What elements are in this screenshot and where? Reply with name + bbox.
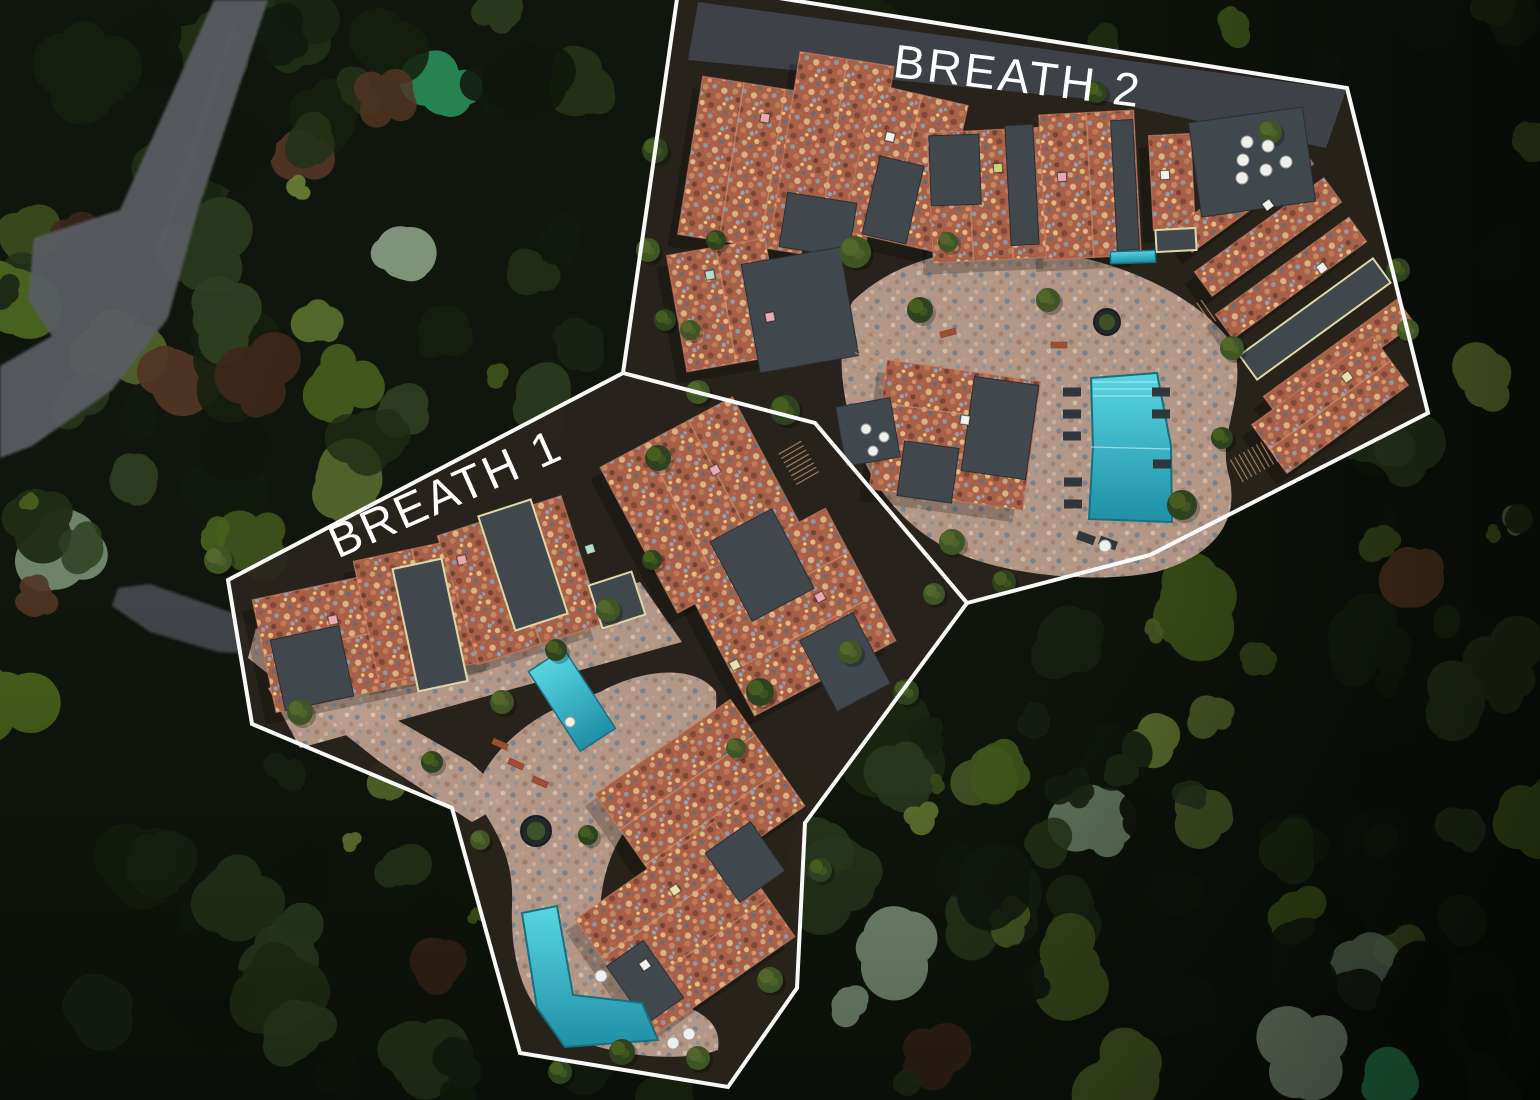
round-table [1237,154,1249,166]
roof-chimney-marker [760,113,770,123]
round-table [861,424,871,434]
roof-chimney-marker [328,615,339,626]
round-table [868,446,878,456]
flat-roof [929,134,981,206]
sun-lounger [1064,500,1082,509]
flat-roof [897,441,959,503]
round-table [879,432,889,442]
round-table [1262,140,1274,152]
flat-roof [741,247,859,373]
building-roof [1149,133,1196,230]
flat-roof-trimmed [1155,228,1196,252]
masterplan-stage: BREATH 1BREATH 2 [0,0,1540,1100]
roof-chimney-marker [960,415,970,425]
roof-chimney-marker [705,270,715,280]
planter-bush [1099,314,1115,330]
round-table [667,1037,679,1049]
sun-lounger [1152,410,1170,419]
round-table [1280,156,1292,168]
round-table [595,970,607,982]
sun-lounger [1153,460,1171,469]
sun-lounger [1064,478,1082,487]
roof-chimney-marker [1160,170,1169,179]
sun-lounger [1063,432,1081,441]
round-table [683,1028,695,1040]
roof-chimney-marker [1057,172,1066,181]
flat-roof [1005,124,1039,245]
flat-roof [270,626,353,711]
roof-chimney-marker [457,555,468,566]
roof-chimney-marker [993,163,1002,172]
round-table [565,717,575,727]
round-table [1241,136,1253,148]
swimming-pool [1110,250,1155,264]
round-table [1260,164,1272,176]
roof-chimney-marker [765,312,775,322]
round-table [1236,172,1248,184]
sun-lounger [1152,388,1170,397]
planter-bush [527,822,546,841]
sun-lounger [1063,410,1081,419]
sun-lounger [1063,388,1081,397]
round-table [1099,540,1111,552]
roof-chimney-marker [885,132,896,143]
masterplan-canvas: BREATH 1BREATH 2 [0,0,1540,1100]
flat-roof [1188,107,1315,217]
bench [1051,342,1067,348]
roof-chimney-marker [584,543,595,554]
flat-roof [961,376,1039,479]
